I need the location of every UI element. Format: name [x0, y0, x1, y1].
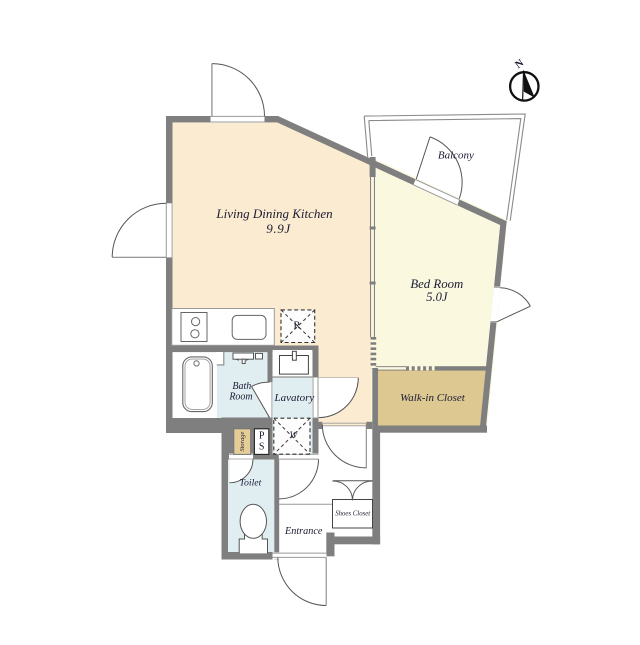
svg-text:S: S	[259, 442, 265, 453]
svg-text:Storage: Storage	[239, 432, 246, 452]
svg-text:Walk-in Closet: Walk-in Closet	[400, 392, 466, 404]
svg-text:Toilet: Toilet	[239, 477, 261, 488]
svg-text:Shoes Closet: Shoes Closet	[335, 511, 371, 518]
svg-text:Bed Room: Bed Room	[410, 277, 463, 291]
svg-text:9.9J: 9.9J	[266, 221, 291, 236]
svg-text:Entrance: Entrance	[284, 526, 323, 537]
svg-text:Room: Room	[228, 392, 252, 403]
svg-text:R: R	[293, 320, 300, 331]
svg-text:Balcony: Balcony	[438, 150, 474, 162]
svg-text:5.0J: 5.0J	[426, 290, 449, 304]
svg-text:W: W	[290, 431, 299, 441]
svg-text:P: P	[259, 431, 265, 442]
svg-text:Bath: Bath	[232, 381, 251, 392]
svg-text:Living Dining Kitchen: Living Dining Kitchen	[215, 206, 332, 221]
svg-text:Lavatory: Lavatory	[274, 392, 315, 404]
